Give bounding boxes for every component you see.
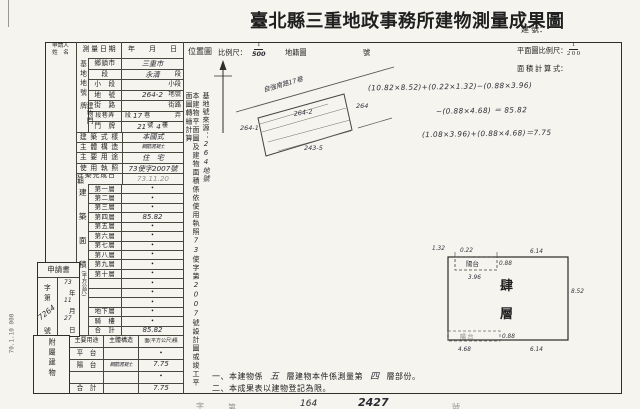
application-month-hw: 11	[64, 297, 72, 304]
dim-396: 3.96	[468, 275, 481, 281]
floor-label: 第四層	[89, 212, 122, 221]
footer-fragment-zi: 字	[196, 401, 204, 409]
application-zi-label: 字	[44, 282, 51, 292]
row-value: 鋼筋混凝土	[123, 142, 183, 152]
floor-label: 第一層	[89, 184, 122, 193]
floor-value-text: 85.82	[142, 214, 162, 222]
road-line	[236, 67, 394, 112]
footnote-2: 二、本成果表以建物登記為限。	[212, 383, 331, 394]
floor-value-text: •	[151, 242, 153, 250]
table-row: 主 要 用 途 住 宅	[45, 152, 183, 162]
applicant-col-spacer	[45, 69, 77, 79]
row-value: 小段	[122, 79, 183, 89]
dim-614-top: 6.14	[530, 249, 543, 255]
table-row: 第一層 •	[45, 184, 183, 193]
attached-area: 7.75	[139, 359, 183, 371]
attached-group-panel: 附屬建物	[33, 335, 70, 394]
street-label: 街 路	[89, 100, 122, 110]
plan-floor-char-2: 層	[500, 306, 513, 321]
lot-source-value-hw: 264地號	[202, 140, 210, 183]
floor-value-text: 85.82	[142, 327, 162, 335]
floor-value-text: •	[151, 280, 153, 288]
lane-label: 段巷弄	[89, 111, 122, 121]
floor-value-text: •	[151, 195, 153, 203]
plan-scale-label: 平面圖比例尺：	[517, 46, 567, 56]
footnote1-prefix: 一、本建物係	[212, 372, 263, 381]
row-label: 鄉鎮市	[89, 58, 122, 68]
attached-area: 7.75	[139, 383, 183, 395]
row-value-text: 264-2	[142, 91, 163, 99]
application-year-label: 年	[69, 287, 76, 297]
table-row: 第三層 •	[45, 203, 183, 212]
floor-value: •	[122, 193, 183, 202]
applicant-col-spacer	[45, 79, 77, 89]
lot-source-label: 基地號來源：	[202, 92, 210, 140]
floor-value-text: •	[151, 270, 153, 278]
floor-group-char-2: 築	[79, 211, 87, 222]
table-row: 第二層 •	[45, 193, 183, 202]
balcony-bottom-label: 陽 台	[460, 333, 474, 341]
basis-license-no-hw: 2007	[192, 281, 200, 319]
footnote-1: 一、本建物係五層建物本件係測量第四層部份。	[212, 369, 421, 382]
floor-value: 85.82	[122, 326, 183, 335]
applicant-col-spacer	[45, 58, 77, 68]
attached-struct	[104, 347, 139, 359]
floor-value-text: •	[151, 223, 153, 231]
floor-value: •	[122, 184, 183, 193]
lot-source-note-vertical: 基地號來源：264地號	[202, 92, 209, 217]
plate-unit2: 樓	[162, 123, 168, 130]
dim-088-bottom: 0.88	[502, 334, 515, 340]
floor-value: •	[122, 203, 183, 212]
floor-label	[89, 278, 122, 287]
floor-label: 第七層	[89, 241, 122, 250]
attached-area-text: 7.75	[153, 361, 169, 369]
street-suffix: 街路	[168, 102, 181, 109]
floor-label: 騎 樓	[89, 316, 122, 325]
applicant-col-spacer	[45, 163, 77, 173]
dim-614-bottom: 6.14	[530, 347, 543, 353]
street-value: 街路	[122, 100, 183, 110]
attached-area: •	[139, 347, 183, 359]
floor-group-char-3: 面	[79, 235, 87, 246]
group-label-col	[77, 222, 89, 231]
plan-outline	[448, 257, 568, 340]
table-row: 第八層 •	[45, 250, 183, 259]
floor-value: •	[122, 222, 183, 231]
survey-date-label: 測 量 日 期	[77, 42, 122, 58]
applicant-col-spacer	[45, 132, 77, 142]
row-value-text: 永清	[145, 71, 159, 79]
floor-value-text: •	[151, 299, 153, 307]
attached-use	[70, 371, 104, 383]
attached-struct	[104, 383, 139, 395]
print-code: 70.1.10 000	[9, 304, 16, 364]
attached-use: 合 計	[70, 383, 104, 395]
row-value-text: 住 宅	[142, 154, 164, 162]
basis-mid: 使字第	[192, 256, 200, 282]
dim-468: 4.68	[458, 347, 471, 353]
applicant-col-spacer	[45, 100, 77, 110]
footnote1-mid: 層建物本件係測量第	[287, 372, 364, 381]
applicant-col-spacer	[45, 203, 77, 212]
row-value: 三重市	[122, 58, 183, 68]
attached-group-label: 附屬建物	[48, 338, 55, 392]
floor-label: 第三層	[89, 203, 122, 212]
site-lot-section: 鄉鎮市 三重市 段 永清 段 小 段	[45, 58, 183, 100]
plan-scale-fraction: 1 2 0 0	[567, 42, 580, 57]
road-name-label: 自強南路17巷	[262, 75, 305, 94]
footnote1-suffix: 層部份。	[387, 372, 421, 381]
attached-use: 陽 台	[70, 359, 104, 371]
row-value-text: 73.11.20	[137, 175, 169, 183]
floor-value-text: •	[151, 318, 153, 326]
applicant-col-spacer	[45, 250, 77, 259]
attached-col-struct: 主體構造	[104, 335, 139, 347]
parcel-right-label: 264	[356, 102, 368, 110]
row-value-text: 73使字2007號	[128, 165, 177, 173]
footnote1-measured-floor-hw: 四	[370, 372, 380, 382]
floor-value-text: •	[151, 261, 153, 269]
floor-value-text: •	[151, 308, 153, 316]
footer-fragment-hao: 號	[452, 402, 460, 409]
applicant-name-cell: 申請人 姓 名	[45, 42, 77, 58]
floor-value: •	[122, 316, 183, 325]
floor-label: 第六層	[89, 231, 122, 240]
row-value: 264-2 地號	[122, 90, 183, 100]
row-value: 73使字2007號	[123, 163, 183, 173]
row-value: 永清 段	[122, 69, 183, 79]
application-year-hw: 73	[64, 279, 72, 286]
floor-label: 第五層	[89, 222, 122, 231]
floor-label: 第二層	[89, 193, 122, 202]
applicant-col-spacer	[45, 241, 77, 250]
applicant-col-spacer	[45, 184, 77, 193]
application-di-label: 第	[44, 292, 51, 302]
floor-value-text: •	[151, 204, 153, 212]
applicant-label-line2: 姓 名	[52, 50, 69, 57]
floor-value: •	[122, 259, 183, 268]
table-right-border	[183, 42, 184, 394]
floor-unit-label: (平方公尺)	[80, 271, 85, 327]
attached-struct: 鋼筋混凝土	[104, 359, 139, 371]
area-calc-label: 面 積 計 算 式：	[517, 64, 567, 74]
footer-fragment-2427: 2427	[358, 396, 389, 409]
table-row: 段巷弄 段 17 巷 弄	[45, 111, 183, 121]
north-arrow	[214, 60, 232, 133]
building-info-section: 建 築 式 樣 本國式 主 體 構 造 鋼筋混凝土 主 要 用 途 住 宅	[45, 132, 183, 184]
floor-label: 第八層	[89, 250, 122, 259]
table-row: 建 築 式 樣 本國式	[45, 132, 183, 142]
floor-value: •	[122, 297, 183, 306]
floor-label	[89, 297, 122, 306]
table-row: 街 路 街路	[45, 100, 183, 110]
scan-edge-line	[8, 0, 9, 27]
row-value: 73.11.20	[123, 173, 183, 183]
row-label: 建築完成日期	[77, 173, 123, 183]
application-day-label: 日	[69, 324, 76, 334]
scanned-survey-document: 70.1.10 000 臺北縣三重地政事務所建物測量成果圖 建 號： 申請人 姓…	[0, 0, 640, 409]
attached-area-text: •	[160, 373, 162, 381]
table-row: 使 用 執 照 73使字2007號	[45, 163, 183, 173]
floor-value-text: •	[151, 185, 153, 193]
applicant-col-spacer	[45, 111, 77, 121]
dim-022: 0.22	[460, 248, 473, 254]
row-label: 小 段	[89, 79, 122, 89]
plate-label: 門 牌	[89, 121, 122, 131]
floor-group-char-4: 積	[79, 259, 87, 270]
application-panel: 申請書 字 第 7264 號 73 年 11 月 27 日	[37, 262, 80, 337]
floor-plan-drawing: 陽台 陽 台 肆 層 1.32 0.22 0.88 3.96 6.14 8.52…	[430, 238, 635, 362]
floor-value: •	[122, 307, 183, 316]
row-label: 建 築 式 樣	[77, 132, 123, 142]
group-label-col	[77, 250, 89, 259]
row-value: 住 宅	[123, 152, 183, 162]
footnote1-floors-hw: 五	[270, 372, 280, 382]
floor-value: •	[122, 269, 183, 278]
applicant-col-spacer	[45, 231, 77, 240]
floor-label: 合 計	[89, 326, 122, 335]
lane-value: 段 17 巷 弄	[122, 111, 183, 121]
row-label: 使 用 執 照	[77, 163, 123, 173]
floor-value-text: •	[151, 251, 153, 259]
table-row: 第七層 •	[45, 241, 183, 250]
floor-value: •	[122, 250, 183, 259]
parcel-left-label: 264-1	[240, 124, 259, 132]
row-label: 主 體 構 造	[77, 142, 123, 152]
door-plate-section: 街 路 街路 段巷弄 段 17 巷 弄 門 牌 21 號 4 樓	[45, 100, 183, 131]
row-value-text: 鋼筋混凝土	[142, 145, 165, 151]
floor-label	[89, 288, 122, 297]
location-scale-numerator: 1	[254, 42, 263, 50]
applicant-col-spacer	[45, 193, 77, 202]
plate-unit1: 號	[147, 123, 153, 130]
site-group-label: 基地地號	[78, 60, 85, 100]
floor-value-text: •	[151, 289, 153, 297]
table-row: 地 號 264-2 地號	[45, 90, 183, 100]
attached-struct	[104, 371, 139, 383]
table-row: 第四層 85.82	[45, 212, 183, 221]
attached-area: •	[139, 371, 183, 383]
row-value-text: 本國式	[142, 133, 164, 141]
document-title: 臺北縣三重地政事務所建物測量成果圖	[250, 7, 565, 33]
basis-license-year-hw: 73	[192, 237, 200, 256]
applicant-col-spacer	[45, 142, 77, 152]
parcel-center-label: 264-2	[293, 107, 313, 118]
lane-pre: 段	[125, 113, 131, 120]
table-row: 第六層 •	[45, 231, 183, 240]
basis-note-vertical: 本建物平面圖及建物面積係依使用執照73使字第2007號設計圖或竣工平面圖轉繪計算	[185, 92, 199, 392]
floor-value: •	[122, 231, 183, 240]
application-day-hw: 27	[64, 315, 72, 322]
footer-fragment-di: 第	[228, 402, 236, 409]
application-month-label: 月	[69, 305, 76, 315]
row-label: 段	[89, 69, 122, 79]
attached-struct-text: 鋼筋混凝土	[110, 363, 133, 369]
floor-group-char-1: 建	[79, 187, 87, 198]
floor-label: 第九層	[89, 259, 122, 268]
table-row: 段 永清 段	[45, 69, 183, 79]
table-row: 小 段 小段	[45, 79, 183, 89]
applicant-col-spacer	[45, 173, 77, 183]
row-value: 本國式	[123, 132, 183, 142]
dim-852: 8.52	[571, 289, 584, 295]
registration-number-label: 建 號：	[521, 24, 547, 35]
door-group-label: 建物門牌	[78, 102, 91, 132]
plate-number-hw: 21	[137, 123, 146, 131]
row-value-text: 三重市	[142, 60, 164, 68]
row-unit-suffix: 地號	[168, 92, 181, 99]
applicant-col-spacer	[45, 222, 77, 231]
parcel-bottom-label: 243-5	[304, 144, 323, 152]
attached-col-area: 面(平方公尺)積	[139, 335, 183, 347]
floor-value: •	[122, 278, 183, 287]
footer-fragment-164: 164	[300, 399, 317, 409]
floor-value: •	[122, 288, 183, 297]
basis-prefix: 本建物平面圖及建物面積係依使用執照	[192, 92, 200, 237]
dim-088-top: 0.88	[499, 261, 512, 267]
plate-floor-hw: 4	[156, 123, 161, 131]
floor-label: 地下層	[89, 307, 122, 316]
row-label: 地 號	[89, 90, 122, 100]
row-label: 主 要 用 途	[77, 152, 123, 162]
application-hao-label: 號	[44, 325, 51, 335]
attached-area-text: •	[160, 350, 162, 358]
lane-suffix: 弄	[175, 113, 181, 120]
plan-floor-char-1: 肆	[500, 278, 513, 293]
table-row: 主 體 構 造 鋼筋混凝土	[45, 142, 183, 152]
applicant-col-spacer	[45, 90, 77, 100]
plate-value: 21 號 4 樓	[122, 121, 183, 131]
boundary-line	[358, 118, 392, 128]
applicant-col-spacer	[45, 212, 77, 221]
attached-use: 平 台	[70, 347, 104, 359]
application-number-hw: 7264	[36, 303, 57, 322]
table-row: 鄉鎮市 三重市	[45, 58, 183, 68]
floor-value: 85.82	[122, 212, 183, 221]
lane-mid: 巷	[144, 113, 150, 120]
floor-value: •	[122, 241, 183, 250]
row-unit-suffix: 段	[175, 71, 181, 78]
balcony-top-label: 陽台	[466, 259, 479, 268]
floor-value-text: •	[151, 232, 153, 240]
table-header-row: 申請人 姓 名 測 量 日 期 年 月 日	[45, 42, 183, 58]
applicant-col-spacer	[45, 152, 77, 162]
area-formula-line-2: −(0.88×4.68) ＝ 85.82	[436, 105, 527, 117]
location-sketch: 自強南路17巷 264-1 264-2 264 243-5	[208, 54, 406, 188]
plan-scale-denominator: 2 0 0	[567, 50, 580, 58]
survey-date-value: 年 月 日	[122, 42, 183, 58]
plan-scale-numerator: 1	[569, 42, 578, 50]
dim-132: 1.32	[432, 246, 445, 252]
attached-area-text: 7.75	[153, 385, 169, 393]
application-title: 申請書	[38, 263, 79, 278]
table-row: 門 牌 21 號 4 樓	[45, 121, 183, 131]
table-row: 第五層 •	[45, 222, 183, 231]
floor-label: 第十層	[89, 269, 122, 278]
applicant-col-spacer	[45, 121, 77, 131]
row-unit-suffix: 小段	[168, 82, 181, 89]
table-row: 建築完成日期 73.11.20	[45, 173, 183, 183]
lane-number-hw: 17	[133, 112, 142, 120]
